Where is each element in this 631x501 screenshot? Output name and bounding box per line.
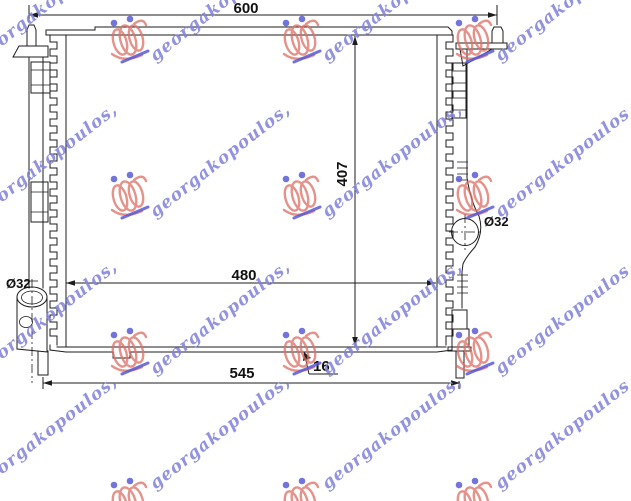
left-mounting-bracket [13, 25, 50, 288]
radiator-core-outline [46, 27, 452, 358]
radiator-technical-drawing: 600 407 480 545 16 [0, 0, 631, 501]
right-mounting-bracket [448, 27, 507, 378]
dim-545-label: 545 [229, 365, 254, 382]
dim-407-label: 407 [334, 161, 351, 186]
right-inlet-boss [449, 214, 482, 250]
dim-545: 545 [43, 365, 460, 389]
left-serrated-edge [50, 35, 57, 345]
left-inlet-diameter-label: Ø32 [6, 276, 31, 291]
left-serrated-edge-path [50, 35, 57, 345]
radiator-drawing-canvas: 600 407 480 545 16 [0, 0, 631, 501]
dim-600: 600 [29, 0, 497, 25]
dim-16: 16 [303, 352, 338, 375]
dim-16-label: 16 [313, 358, 330, 375]
dim-600-label: 600 [233, 0, 258, 17]
right-inlet-diameter-label: Ø32 [484, 214, 509, 229]
dim-480: 480 [66, 267, 436, 286]
left-inlet-pipe [17, 279, 48, 383]
dim-480-label: 480 [231, 267, 256, 284]
dim-407: 407 [334, 36, 358, 346]
